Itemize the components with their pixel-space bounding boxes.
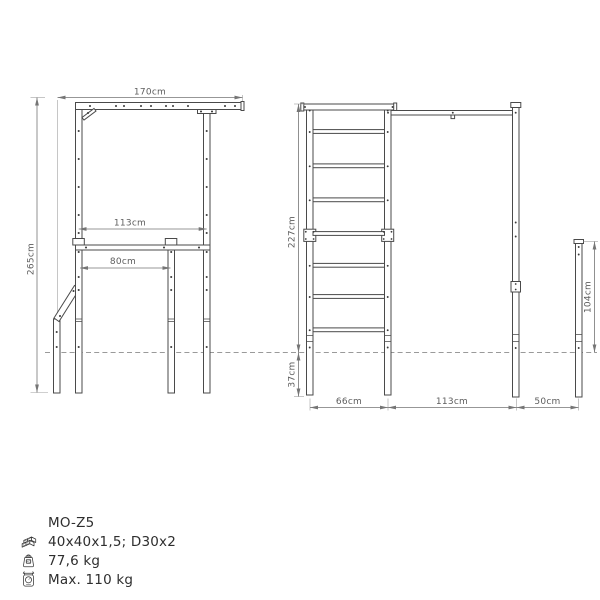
product-info: MO-Z5 40x40x1,5; D30x2 (20, 514, 176, 589)
dim-label-post-offset: 50cm (534, 397, 560, 407)
dim-label-end-post-height: 104cm (584, 281, 594, 313)
top-bar-end-cap (241, 102, 244, 111)
bar-hanger (451, 115, 455, 119)
top-bar (76, 103, 243, 110)
info-row-weight: KG 77,6 kg (20, 552, 176, 571)
dimension-frame-width: 170cm (58, 88, 243, 98)
dim-label-frame-height: 265cm (27, 243, 37, 275)
dip-bar-cap-left (73, 239, 85, 246)
svg-text:KG: KG (26, 559, 30, 563)
far-post (513, 104, 520, 398)
dim-label-dip-width: 80cm (110, 257, 136, 267)
dip-bar-cap-middle (165, 239, 177, 246)
left-frame-structure (54, 95, 245, 393)
weight-label: 77,6 kg (48, 553, 100, 569)
drawing-svg: 170cm 113cm 80cm 265cm 227cm 37cm 66cm 1… (0, 0, 600, 600)
info-row-model: MO-Z5 (20, 514, 176, 533)
ladder-structure (301, 103, 397, 395)
dimension-dip-bar-width: 80cm (80, 257, 171, 268)
dim-label-ladder-height: 227cm (288, 216, 298, 248)
ladder-bolt-dots (304, 106, 393, 348)
short-post (576, 241, 583, 398)
dim-label-underground: 37cm (288, 361, 298, 387)
ladder-rungs (313, 130, 385, 332)
profiles-stack-icon (20, 533, 48, 552)
info-row-profile: 40x40x1,5; D30x2 (20, 533, 176, 552)
dim-label-inner-width: 113cm (114, 219, 146, 229)
scale-icon (20, 570, 48, 589)
max-load-label: Max. 110 kg (48, 572, 133, 588)
front-short-post (54, 319, 61, 393)
far-post-cap (511, 103, 521, 108)
dim-label-frame-width: 170cm (134, 88, 166, 98)
ladder-right-post (385, 104, 392, 395)
dimension-frame-inner-width: 113cm (79, 219, 207, 230)
pullup-bar (391, 111, 513, 116)
kg-weight-icon: KG (20, 552, 48, 571)
short-post-cap (574, 240, 584, 244)
dimension-underground-depth: 37cm (288, 353, 305, 397)
corner-gusset (82, 109, 96, 121)
middle-post (168, 244, 175, 394)
dim-label-ladder-width: 66cm (336, 397, 362, 407)
profile-spec-label: 40x40x1,5; D30x2 (48, 534, 176, 550)
ladder-top-rung (302, 104, 396, 110)
dimension-frame-height: 265cm (27, 98, 49, 393)
info-row-max-load: Max. 110 kg (20, 570, 176, 589)
dimension-end-post-height: 104cm (584, 242, 599, 353)
model-label: MO-Z5 (48, 515, 94, 531)
far-post-bolt-dots (387, 112, 517, 349)
end-short-post (574, 240, 584, 398)
dip-bar (76, 245, 211, 250)
ladder-left-post (307, 104, 314, 395)
dimension-ladder-height: 227cm (288, 104, 305, 353)
far-post-joint-bracket (511, 282, 521, 293)
dimension-bottom-row: 66cm 113cm 50cm (310, 397, 579, 411)
dim-label-pullup-span: 113cm (436, 397, 468, 407)
technical-drawing-page: 170cm 113cm 80cm 265cm 227cm 37cm 66cm 1… (0, 0, 600, 600)
